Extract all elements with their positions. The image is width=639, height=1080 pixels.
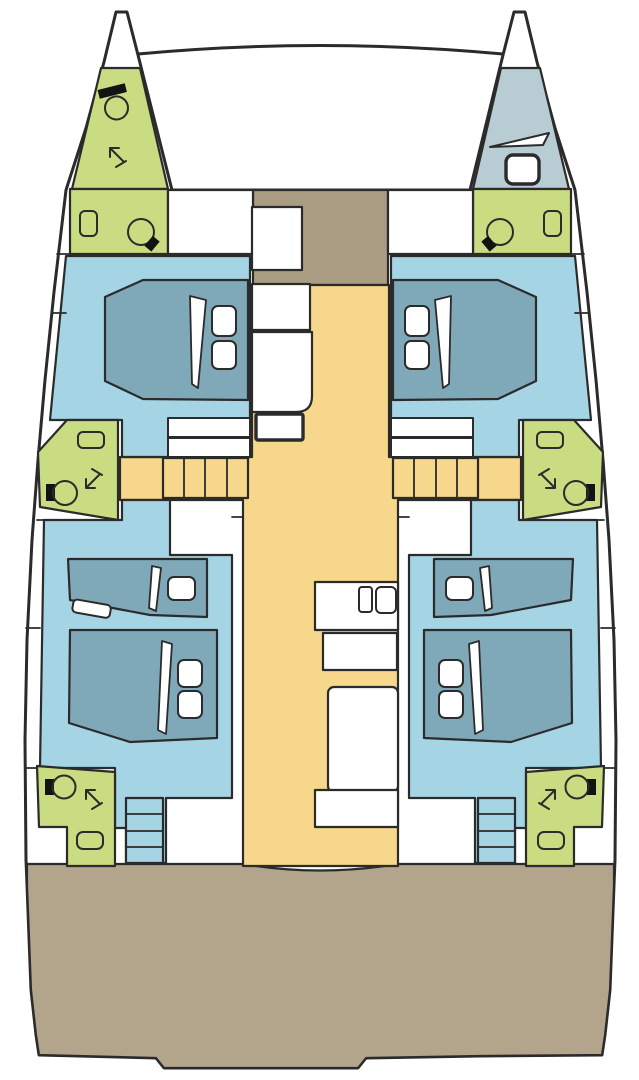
foredeck-hatch [252,207,302,270]
wardrobe [391,438,473,457]
pillow [168,577,195,600]
pillow [178,691,202,718]
wardrobe [168,418,250,437]
transom-steps-starboard [478,798,515,863]
galley-counter-mid [252,332,312,412]
companionway-stairs-port [163,458,248,498]
deck-hatch-icon [506,155,539,184]
floorplan-svg [0,0,639,1080]
galley-block [323,633,397,670]
wardrobe [168,438,250,457]
starboard-deck-locker [388,190,473,254]
pillow [439,660,463,687]
pillow [212,306,236,336]
galley-sink-counter [315,582,398,630]
forward-crossbeam [138,46,503,55]
port-deck-locker [168,190,253,254]
pillow [439,691,463,718]
chart-table [256,414,303,440]
pillow [405,306,429,336]
galley-island [328,687,398,792]
wardrobe [391,418,473,437]
galley-aft-unit [315,790,398,827]
pillow [446,577,473,600]
catamaran-floorplan [0,0,639,1080]
pillow [178,660,202,687]
pillow [405,341,429,369]
pillow [212,341,236,369]
transom-steps-port [126,798,163,863]
galley-counter-forward [252,284,310,330]
cockpit-deck [27,864,614,1068]
companionway-stairs-starboard [393,458,478,498]
